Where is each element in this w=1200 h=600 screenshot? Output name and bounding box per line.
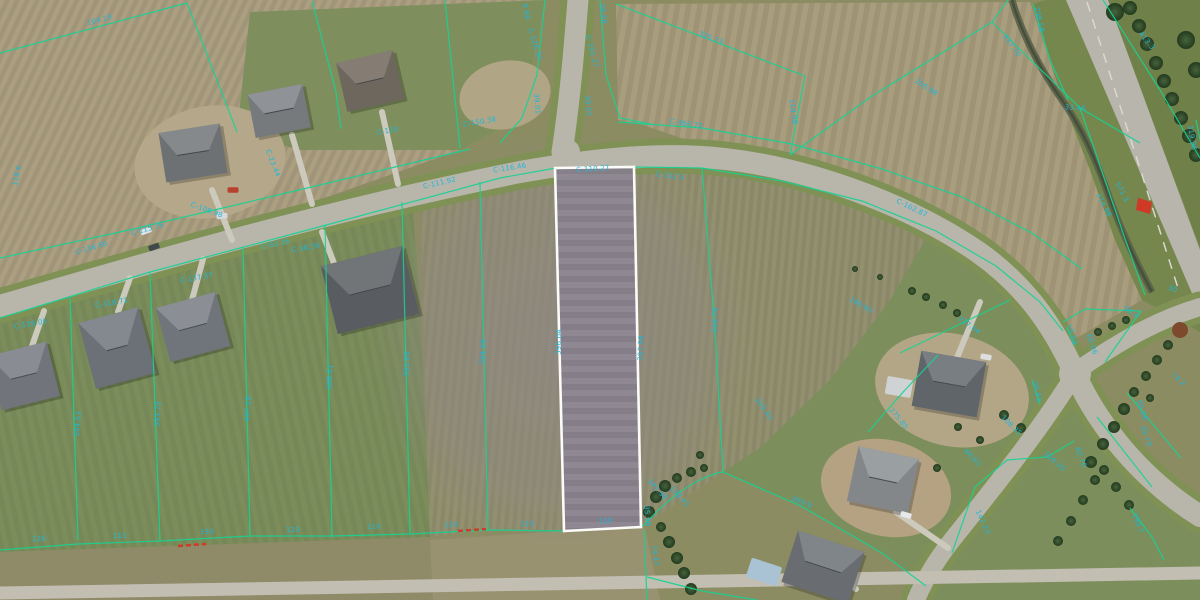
dimension-label: 318.76 [710, 307, 719, 333]
tree [1097, 438, 1109, 450]
tree [696, 451, 704, 459]
house [911, 351, 989, 421]
dimension-label: 130 [200, 528, 214, 536]
tree [1157, 74, 1171, 88]
tree [672, 473, 682, 483]
tree [1066, 516, 1076, 526]
tree [1090, 475, 1100, 485]
dimension-label: 397.98 [637, 335, 646, 361]
tree [1165, 92, 1179, 106]
dimension-label: 396.04 [555, 329, 564, 355]
selected-parcel-layer [555, 167, 641, 531]
tree [678, 567, 690, 579]
tree [1053, 536, 1063, 546]
dimension-label: 120 [286, 526, 300, 534]
tree [1078, 495, 1088, 505]
dimension-label: 126 [32, 535, 47, 544]
tree [908, 287, 916, 295]
dimension-label: 110 [444, 521, 458, 529]
tree [922, 293, 930, 301]
dimension-label: 110 [367, 523, 381, 531]
dimension-label: 115 [113, 532, 127, 541]
tree [939, 301, 947, 309]
tree [1108, 322, 1116, 330]
tree [1172, 322, 1188, 338]
tree [656, 522, 666, 532]
dimension-label: 394.10 [478, 339, 487, 365]
tree [1099, 465, 1109, 475]
dimension-label: 33.46 [1064, 103, 1086, 112]
tree [1146, 394, 1154, 402]
tree [1152, 355, 1162, 365]
tree [1094, 328, 1102, 336]
tree [976, 436, 984, 444]
aerial-map-viewport[interactable]: 104.19118.6C-23.44C-106.98C-136.60C-115.… [0, 0, 1200, 600]
tree [1149, 56, 1163, 70]
dimension-label: 391.85 [402, 351, 411, 377]
tree [1163, 340, 1173, 350]
tree [671, 552, 683, 564]
tree [877, 274, 883, 280]
tree [852, 266, 858, 272]
tree [1129, 387, 1139, 397]
dimension-label: 388.61 [325, 364, 334, 390]
road-intersection [1059, 358, 1091, 390]
tree [1122, 316, 1130, 324]
house [158, 123, 230, 186]
aerial-map-canvas: 104.19118.6C-23.44C-106.98C-136.60C-115.… [0, 0, 1200, 600]
tree [1118, 403, 1130, 415]
dimension-label: 110 [520, 520, 534, 528]
tree [663, 536, 675, 548]
tree [1108, 421, 1120, 433]
selected-parcel-highlight[interactable] [555, 167, 641, 531]
tree [954, 423, 962, 431]
road-intersection [554, 139, 580, 165]
dimension-label: 110 [599, 517, 613, 525]
tree [700, 464, 708, 472]
tree [1141, 371, 1151, 381]
tree [1124, 500, 1134, 510]
tree [1177, 31, 1195, 49]
tree [1111, 482, 1121, 492]
tree [686, 467, 696, 477]
tree [933, 464, 941, 472]
vehicle [228, 187, 239, 193]
tree [1123, 1, 1137, 15]
